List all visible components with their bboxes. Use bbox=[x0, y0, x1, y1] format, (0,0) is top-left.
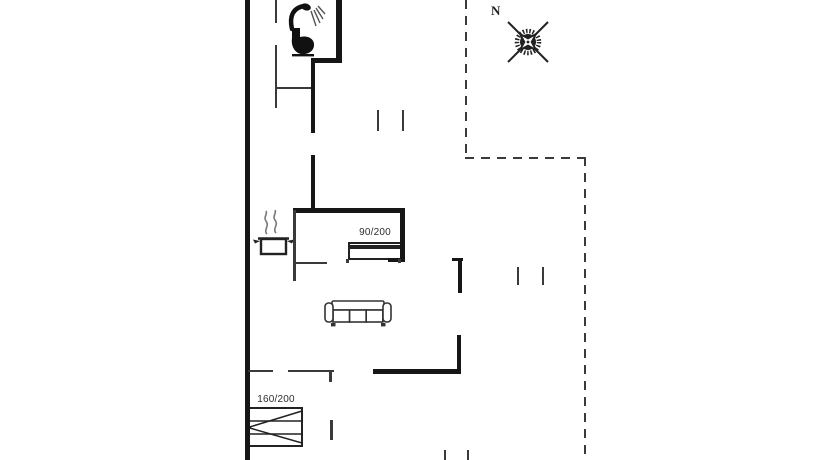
bathroom-wall-left-upper bbox=[275, 0, 277, 23]
terrace-dashed-right bbox=[584, 157, 586, 460]
living-wall-bottom bbox=[373, 369, 461, 374]
bathroom-wall-step bbox=[311, 58, 342, 63]
bathroom-wall-right bbox=[336, 0, 342, 63]
stub-wall-vertical bbox=[458, 258, 462, 293]
compass-rose-icon bbox=[504, 18, 552, 66]
bedroom2-window-tick bbox=[330, 420, 333, 440]
bottom-edge-tick-2 bbox=[467, 450, 469, 460]
compass-north-label: N bbox=[491, 3, 500, 19]
bathroom-wall-bottom bbox=[277, 87, 311, 89]
bed-size-label: 160/200 bbox=[250, 394, 302, 405]
bed1-foot-left bbox=[346, 259, 349, 263]
opening-tick-top-1 bbox=[377, 110, 379, 131]
sofa-icon bbox=[324, 298, 392, 328]
hall-wall-lower bbox=[311, 155, 315, 210]
bed1-foot-right bbox=[398, 259, 401, 263]
kitchen-wall-bottom bbox=[293, 262, 327, 264]
opening-tick-right-2 bbox=[542, 267, 544, 285]
bedroom1-wall-right bbox=[400, 208, 405, 261]
bathroom-wall-left-lower bbox=[275, 45, 277, 108]
terrace-dashed-top bbox=[465, 157, 587, 159]
toilet-icon bbox=[288, 28, 320, 58]
floor-plan-canvas: N bbox=[0, 0, 834, 460]
exterior-wall-left bbox=[245, 0, 250, 460]
bedroom1-wall-top bbox=[293, 208, 405, 213]
bottom-wall-segment-1 bbox=[248, 370, 273, 372]
hall-wall-upper bbox=[311, 58, 315, 133]
bed-headboard bbox=[350, 245, 400, 249]
terrace-dashed-left bbox=[465, 0, 467, 155]
door-jamb-tick bbox=[329, 372, 332, 382]
living-wall-right bbox=[457, 335, 461, 371]
opening-tick-top-2 bbox=[402, 110, 404, 131]
bottom-edge-tick-1 bbox=[444, 450, 446, 460]
opening-tick-right-1 bbox=[517, 267, 519, 285]
kitchen-wall-left bbox=[293, 210, 296, 281]
bottom-wall-segment-2 bbox=[288, 370, 334, 372]
bedroom1-wall-endcap bbox=[388, 258, 405, 262]
bed-size-label: 90/200 bbox=[348, 227, 402, 238]
double-bed-icon bbox=[247, 407, 303, 447]
cooking-pot-icon bbox=[250, 210, 296, 258]
